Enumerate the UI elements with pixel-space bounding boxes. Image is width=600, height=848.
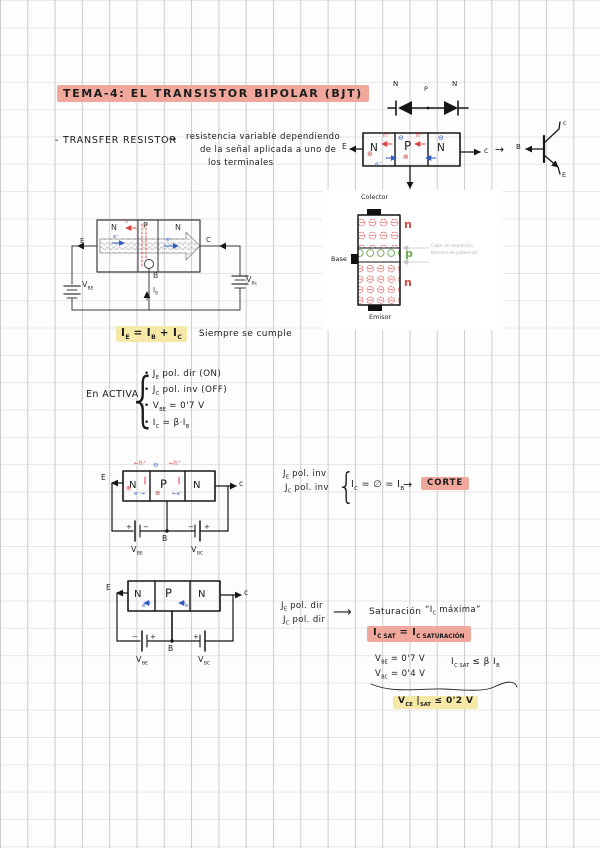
vbc-source-label: VBc [246, 276, 257, 287]
region-p-label: P [404, 140, 412, 153]
notes-page: TEMA-4: EL TRANSISTOR BIPOLAR (BJT) - TR… [0, 0, 600, 848]
equation-note: Siempre se cumple [199, 329, 292, 339]
terminal-e-label: E [342, 143, 347, 151]
icsat-equation: IC SAT = IC SATURACIÓN [367, 626, 471, 642]
intro-line3: los terminales [208, 159, 273, 168]
cutoff-circuit: E N P N ←h⁺ ⊖ ←h⁺ ⊕ e⁻→ ⊕ ←e⁻ c B + − − … [93, 458, 253, 563]
region-p-label: P [165, 587, 172, 599]
electron-label: e⁻ [113, 235, 119, 241]
cutoff-equation: IC = ∅ = IB [351, 480, 404, 493]
je-condition: JE pol. inv [283, 470, 326, 481]
active-item-2: • JC pol. inv (OFF) [144, 386, 227, 397]
intro-line1: resistencia variable dependiendo [186, 133, 340, 142]
arrow-icon: → [495, 144, 504, 156]
terminal-e-label: E [101, 474, 106, 482]
terminal-e-label: E [106, 584, 111, 592]
npn-doping-figure: Colector Base Emisor n p n Capa de deple… [323, 190, 503, 330]
base-label: Base [331, 256, 347, 263]
underbrace-squiggle [369, 680, 519, 694]
electron-label: e⁻ [375, 162, 382, 168]
jc-condition: JC pol. dir [283, 616, 325, 627]
saturation-circuit-sketch [98, 574, 258, 674]
page-title-wrap: TEMA-4: EL TRANSISTOR BIPOLAR (BJT) [57, 82, 369, 101]
region-p-label: p [405, 248, 413, 260]
icsat-limit: IC SAT ≤ β IB [451, 658, 500, 669]
active-item-3: • VBE = 0'7 V [144, 402, 205, 413]
battery-plus-sign: + [204, 524, 210, 531]
emitter-label: Emisor [369, 314, 391, 321]
arrow-icon: → [168, 135, 176, 146]
intro-note: - TRANSFER RESISTOR → resistencia variab… [55, 132, 385, 184]
diode-n2-label: N [452, 81, 457, 88]
electron-label: e⁻ [166, 238, 172, 244]
region-n-label: N [134, 590, 142, 601]
region-n-label: N [193, 481, 201, 492]
hole-arrow: ←h⁺ [134, 461, 146, 467]
region-n-label: n [404, 219, 412, 231]
vbe-value: VBE = 0'7 V [375, 655, 425, 666]
current-equation-row: IE = IB + IC Siempre se cumple [116, 326, 292, 342]
region-n-label: N [198, 590, 206, 601]
terminal-c-label: c [484, 147, 489, 155]
electron-circle: ⊖ [153, 462, 158, 469]
battery-plus-sign: + [193, 634, 199, 641]
ic-max-quote: “IC máxima” [425, 606, 481, 617]
current-equation: IE = IB + IC [116, 326, 187, 342]
terminal-b-label: B [153, 272, 158, 280]
region-n-label: N [370, 143, 378, 154]
electron-arrow: e⁻ [142, 604, 148, 610]
region-n-label: N [175, 224, 181, 232]
battery-plus-sign: + [150, 634, 156, 641]
battery-minus-sign: − [132, 634, 138, 641]
vbe-source-label: VBE [131, 546, 143, 557]
page-title: TEMA-4: EL TRANSISTOR BIPOLAR (BJT) [57, 85, 369, 102]
terminal-b-label: B [168, 645, 174, 653]
hole-arrow: ←h⁺ [169, 461, 181, 467]
cutoff-label: CORTE [421, 477, 469, 490]
cutoff-circuit-sketch [93, 458, 253, 563]
region-p-label: P [160, 478, 167, 490]
terminal-c-label: C [206, 237, 211, 244]
battery-minus-sign: − [188, 524, 194, 531]
hole-circle: ⊕ [126, 485, 131, 492]
vbe-source-label: VBE [136, 656, 148, 667]
electron-circle: ⊖ [398, 135, 404, 142]
vbe-source-label: VBE [82, 281, 94, 292]
region-n-label: N [111, 224, 117, 232]
je-condition: JE pol. dir [281, 602, 323, 613]
jc-condition: JC pol. inv [285, 484, 329, 495]
region-n-label: N [437, 143, 445, 154]
region-p-label: P [143, 222, 148, 230]
hole-circle: ⊕ [155, 490, 160, 497]
collector-label: Colector [361, 194, 388, 201]
battery-minus-sign: − [143, 524, 149, 531]
saturation-circuit: E N P N e⁻ e⁻ c B − + + VBE VBC [98, 574, 258, 674]
depletion-caption: Capa de depleción [431, 245, 473, 250]
intro-line2: de la señal aplicada a uno de [200, 146, 336, 155]
barrier-caption: Barrera de potencial [431, 252, 477, 257]
active-region-block: En ACTIVA { • JE pol. dir (ON) • JC pol.… [86, 364, 326, 444]
electron-arrow: ←e⁻ [172, 492, 183, 498]
bjt-symbol: B c E [514, 116, 594, 192]
terminal-b-label: B [516, 144, 521, 151]
bjt-symbol-sketch [514, 116, 594, 192]
saturation-note: JE pol. dir JC pol. dir ⟶ Saturación “IC… [281, 598, 541, 728]
electron-arrow: e⁻→ [134, 492, 145, 498]
long-arrow-icon: ⟶ [333, 606, 352, 620]
diode-p-label: P [424, 86, 428, 93]
terminal-c-label: c [244, 589, 249, 597]
vbc-source-label: VBC [191, 546, 203, 557]
hole-label: h⁺ [383, 133, 390, 139]
battery-plus-sign: + [126, 524, 132, 531]
terminal-b-label: B [162, 535, 168, 543]
npn-doping-sketch [323, 190, 503, 330]
terminal-c-label: c [239, 480, 244, 488]
hole-circle: ⊕ [403, 154, 409, 161]
base-current-label: IB [153, 287, 158, 296]
vcesat-equation: VCE |SAT ≤ 0'2 V [393, 696, 478, 709]
saturation-title: Saturación [369, 608, 421, 617]
terminal-e-label: E [80, 238, 84, 245]
hole-label: h⁺ [416, 133, 423, 139]
terminal-e-label: E [562, 172, 567, 179]
active-item-1: • JE pol. dir (ON) [144, 370, 221, 381]
vbc-source-label: VBC [198, 656, 210, 667]
electron-arrow: e⁻ [185, 604, 191, 610]
active-item-4: • IC = β·IB [144, 419, 189, 430]
biased-npn-sketch [28, 196, 308, 326]
arrow-icon: → [403, 479, 412, 491]
biased-npn-diagram: N P N E C h⁺ e⁻ e⁻ B IB VBE VBc [28, 196, 308, 326]
hole-label: h⁺ [125, 220, 131, 226]
region-n-label: n [404, 277, 412, 289]
intro-bullet: - TRANSFER RESISTOR [55, 136, 177, 146]
terminal-c-label: c [563, 120, 567, 127]
diode-n-label: N [393, 81, 398, 88]
cutoff-note: JE pol. inv JC pol. inv { IC = ∅ = IB → … [283, 466, 473, 518]
